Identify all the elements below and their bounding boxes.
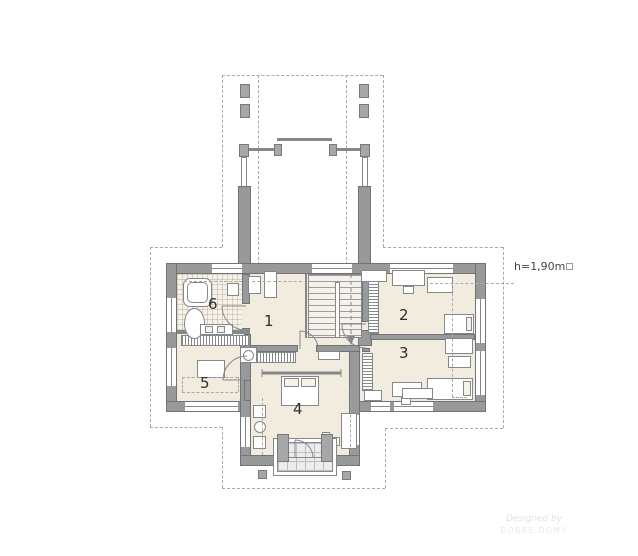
door-arc-bathroom bbox=[222, 306, 246, 330]
room-5-label: 5 bbox=[200, 374, 210, 392]
door-arc-room5 bbox=[223, 356, 247, 380]
room-4-label: 4 bbox=[293, 400, 303, 418]
height-marker-square-icon bbox=[566, 263, 573, 270]
room-6-label: 6 bbox=[208, 295, 218, 313]
room-2-label: 2 bbox=[399, 306, 409, 324]
floor-plan: 1 2 3 4 5 6 h=1,90m Designed by DOBRE DO… bbox=[0, 0, 638, 556]
door-arc-room4 bbox=[300, 331, 318, 349]
room-3-label: 3 bbox=[399, 344, 409, 362]
door-arcs-overlay bbox=[0, 0, 638, 556]
room-1-label: 1 bbox=[264, 312, 274, 330]
watermark-line1: Designed by bbox=[478, 514, 590, 526]
attic-height-note: h=1,90m bbox=[514, 260, 565, 273]
door-arc-balcony bbox=[295, 440, 313, 458]
watermark-line2: DOBRE DOMY bbox=[478, 526, 590, 536]
watermark: Designed by DOBRE DOMY bbox=[478, 514, 590, 535]
